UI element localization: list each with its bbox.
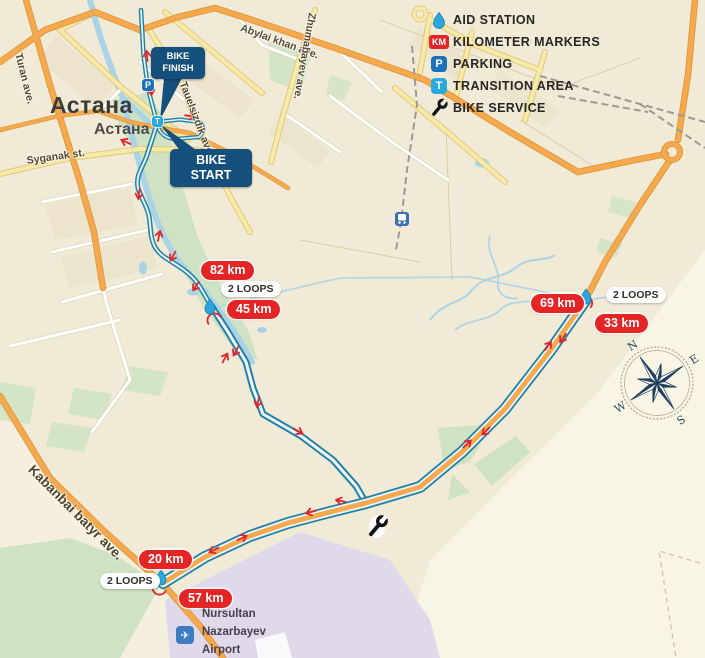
legend-transition: T TRANSITION AREA [425,75,600,97]
km-marker-45: 45 km [227,300,280,319]
city-label-secondary: Астана [94,121,150,139]
legend-label: KILOMETER MARKERS [453,35,600,49]
legend-label: BIKE SERVICE [453,101,546,115]
bike-course-map: N E S W AID STATION KM KILOMETER MARKERS… [0,0,705,658]
loops-label-east: 2 LOOPS [606,287,666,303]
loops-label-west: 2 LOOPS [221,281,281,297]
legend-label: AID STATION [453,13,535,27]
km-marker-20: 20 km [139,550,192,569]
terrain-layer [0,25,705,658]
loops-label-south: 2 LOOPS [100,573,160,589]
legend-label: PARKING [453,57,513,71]
transition-badge: T [152,116,163,127]
map-legend: AID STATION KM KILOMETER MARKERS P PARKI… [425,9,600,119]
parking-badge-icon: P [425,56,453,72]
bike-service-icon [368,513,390,538]
km-badge-icon: KM [425,35,453,49]
city-label-primary: Астана [50,92,133,119]
legend-label: TRANSITION AREA [453,79,574,93]
transition-badge-icon: T [425,78,453,94]
aid-station-icon [425,11,453,29]
wrench-icon [425,97,453,119]
km-marker-82: 82 km [201,261,254,280]
train-station-icon [395,212,409,226]
bike-finish-callout: BIKE FINISH [151,47,205,79]
bike-start-callout: BIKE START [170,149,252,187]
airport-label: Nursultan Nazarbayev Airport [202,605,266,658]
km-marker-69: 69 km [531,294,584,313]
legend-parking: P PARKING [425,53,600,75]
legend-bike-service: BIKE SERVICE [425,97,600,119]
airport-icon: ✈ [176,626,194,644]
km-marker-33: 33 km [595,314,648,333]
legend-aid-station: AID STATION [425,9,600,31]
legend-km-markers: KM KILOMETER MARKERS [425,31,600,53]
parking-badge: P [142,79,154,91]
